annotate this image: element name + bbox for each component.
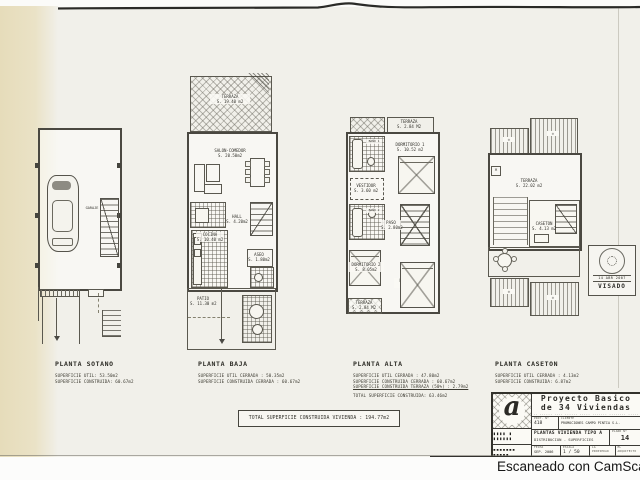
room-label-terraza-top: TERRAZA S. 2.84 M2 — [389, 119, 429, 129]
room-label-terraza-caseton: TERRAZA S. 22.02 m2 — [509, 178, 549, 188]
room-label-dorm1: DORMITORIO 1 S. 10.52 m2 — [390, 142, 430, 152]
room-label-bano2: BAÑO 2 — [366, 208, 382, 213]
room-label-dorm2: DORMITORIO 2 S. 8.05m2 — [348, 262, 384, 272]
stamp-date: 14 ABR 2007 — [593, 275, 631, 282]
plan-title-baja: PLANTA BAJA — [198, 360, 338, 368]
paper-fold-line — [618, 8, 619, 388]
pergola-slats — [493, 197, 528, 245]
roof-panel-tr: ✛ — [530, 118, 578, 154]
plano-number-cell: PLANO Nº 14 — [610, 430, 640, 446]
room-label-cocina: COCINA S. 10.40 m2 — [196, 232, 224, 242]
college-seal-icon — [599, 248, 625, 274]
sofa-2 — [204, 184, 222, 194]
plan-sotano: GARAJE — [28, 118, 133, 350]
plan-title-caseton: PLANTA CASETON — [495, 360, 635, 368]
sheet-title-cell: PLANTAS VIVIENDA TIPO A DISTRIBUCION - S… — [532, 430, 610, 446]
caption-sotano: PLANTA SOTANO SUPERFICIE UTIL: 53.50m2 S… — [55, 360, 195, 384]
title-block: a ▮▮▮▮ ▮ ▮▮▮▮▮▮ ▪▪▪▪▪▪▪ ▪▪▪▪▪ Proyecto B… — [491, 392, 640, 462]
room-label-vestidor: VESTIDOR S. 3.60 m2 — [352, 183, 380, 193]
room-label-bano1: BAÑO 1 — [366, 139, 382, 144]
dining-table — [250, 158, 265, 187]
roof-drain: ✕ — [491, 166, 501, 176]
room-label-salon: SALON-COMEDOR S. 20.50m2 — [204, 148, 256, 158]
baja-office — [190, 202, 226, 228]
room-label-patio: PATIO S. 11.30 m2 — [190, 296, 216, 306]
title-block-left: a ▮▮▮▮ ▮ ▮▮▮▮▮▮ ▪▪▪▪▪▪▪ ▪▪▪▪▪ — [493, 394, 532, 460]
room-label-hall: HALL S. 4.20m2 — [226, 214, 248, 224]
roof-panel-bl: ✛ — [490, 278, 529, 307]
caseton-staircase — [555, 204, 577, 234]
office-table — [195, 208, 209, 223]
baja-bath — [250, 267, 274, 288]
roof-panel-br: ✛ — [530, 282, 579, 316]
alta-balcony — [350, 117, 385, 133]
studio-logo: a — [493, 394, 531, 429]
car-icon — [47, 175, 79, 252]
car-windshield — [52, 181, 71, 190]
room-label-terraza-bottom: TERRAZA S. 2.84 M2 — [349, 300, 379, 310]
project-subtitle: ·· ······ ···· ······ ····· ······· ····… — [532, 412, 640, 416]
plan-alta: TERRAZA S. 2.84 M2 BAÑO 1 DORMITORIO 1 S… — [340, 112, 448, 342]
total-surface-box: TOTAL SUPERFICIE CONSTRUIDA VIVIENDA : 1… — [238, 410, 400, 427]
logo-a-glyph: a — [493, 392, 531, 422]
patio-arrow-icon — [219, 339, 225, 344]
bathtub-2 — [352, 208, 363, 237]
room-label-caseton: CASETON S. 4.13 m2 — [532, 221, 556, 231]
wc — [367, 157, 375, 166]
room-label-paso: PASO S. 2.80m2 — [381, 220, 401, 230]
project-title: Proyecto Basico de 34 Viviendas ·· ·····… — [532, 394, 640, 417]
scanned-sheet: GARAJE TERRAZA S. 19.40 m2 SALON-COMEDOR… — [0, 0, 640, 480]
coffee-table — [206, 164, 220, 182]
sotano-staircase — [100, 198, 119, 257]
roof-panel-tl: ✛ — [490, 128, 529, 154]
baja-terraza — [190, 76, 272, 132]
plan-title-alta: PLANTA ALTA — [353, 360, 493, 368]
car-rear-glass — [52, 238, 73, 246]
room-label-terraza-baja: TERRAZA S. 19.40 m2 — [210, 94, 250, 104]
caseton-lower-terrace — [488, 247, 580, 277]
exterior-stair — [102, 310, 121, 337]
cliente-cell: CLIENTE PROMOCIONES CAMPO PINTIA S.L. — [559, 417, 640, 429]
baja-staircase — [250, 202, 273, 236]
bed-dorm1 — [398, 156, 435, 194]
title-block-right: Proyecto Basico de 34 Viviendas ·· ·····… — [532, 394, 640, 460]
plan-caseton: ✛ ✛ TERRAZA S. 22.02 m2 ✕ CASETON S. 4.1… — [481, 116, 595, 318]
paper-top-edge — [0, 0, 640, 16]
caseton-room: CASETON S. 4.13 m2 — [529, 200, 580, 247]
visado-stamp: 14 ABR 2007 VISADO — [588, 245, 636, 296]
caption-caseton: PLANTA CASETON SUPERFICIE UTIL CERRADA :… — [495, 360, 635, 384]
car-roof — [52, 200, 73, 232]
bathtub — [352, 139, 363, 169]
proy-number-cell: PROY. Nº 418 — [532, 417, 559, 429]
alta-staircase — [400, 204, 430, 246]
patio-stair-feature — [242, 295, 272, 343]
caption-alta: PLANTA ALTA SUPERFICIE UTIL CERRADA : 47… — [353, 360, 493, 398]
ramp — [42, 296, 80, 344]
sotano-dashed-line — [98, 293, 100, 313]
plan-title-sotano: PLANTA SOTANO — [55, 360, 195, 368]
architect-stamp-row-1: ▮▮▮▮ ▮ ▮▮▮▮▮▮ — [493, 429, 531, 445]
washbasin — [254, 273, 263, 282]
stamp-label: VISADO — [598, 283, 626, 290]
bed-dorm3 — [400, 262, 435, 308]
camscanner-watermark: Escaneado con CamScanner — [497, 459, 640, 474]
sotano-threshold — [88, 289, 104, 297]
room-label-aseo: ASEO S. 1.80m2 — [248, 252, 270, 262]
plan-baja: TERRAZA S. 19.40 m2 SALON-COMEDOR S. 20.… — [176, 72, 284, 364]
ramp-arrow-icon — [54, 336, 60, 341]
caption-baja: PLANTA BAJA SUPERFICIE UTIL CERRADA : 50… — [198, 360, 338, 384]
